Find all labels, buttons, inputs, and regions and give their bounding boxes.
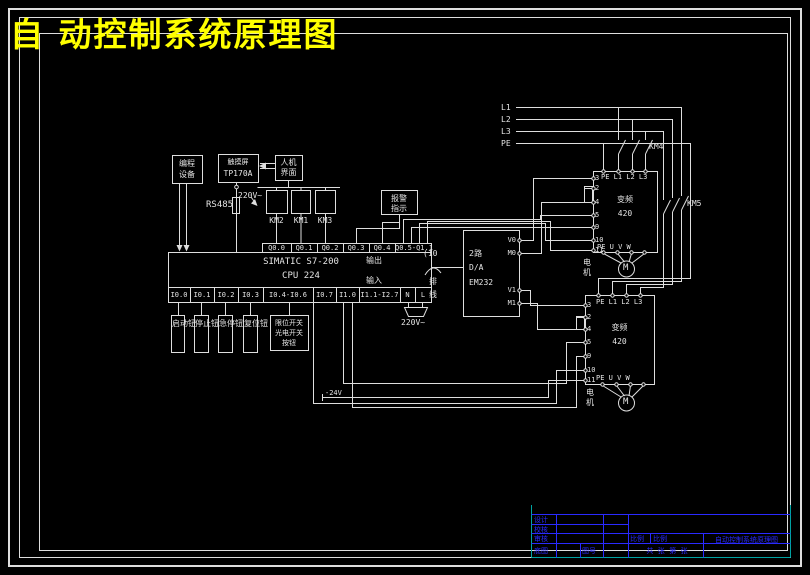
touch-panel-model: TP170A — [218, 169, 258, 178]
em232-channels: 2路 — [469, 249, 482, 258]
plc-input-2: I0.2 — [214, 291, 238, 299]
contactor-km4-label: KM4 — [649, 142, 663, 151]
titleblock-title: 自动控制系统原理图 — [704, 535, 789, 545]
conv2-motor-label-1: 电 — [586, 388, 594, 397]
programmer-label-1: 编程 — [172, 159, 202, 168]
conv2-terminal-11: 11 — [587, 376, 595, 384]
conv1-motor-label-1: 电 — [583, 258, 591, 267]
plc-supply-plug — [405, 303, 428, 317]
input-device-4: 复位钮 — [244, 319, 256, 329]
plc-out-label: 输出 — [366, 256, 382, 265]
plc-model-line1: SIMATIC S7-200 — [226, 257, 376, 267]
schematic-linework — [0, 0, 810, 575]
plc-in-label: 输入 — [366, 276, 382, 285]
rail-l2-label: L2 — [501, 115, 511, 124]
plc-output-1: Q0.1 — [291, 244, 317, 252]
rail-l1-label: L1 — [501, 103, 511, 112]
plc-input-1: I0.1 — [190, 291, 214, 299]
programmer-label-2: 设备 — [172, 170, 202, 179]
plc-output-0: Q0.0 — [262, 244, 291, 252]
rail-pe-label: PE — [501, 139, 511, 148]
plc-input-0: I0.0 — [168, 291, 190, 299]
em232-model: EM232 — [469, 278, 493, 287]
conv1-model: 420 — [593, 209, 657, 218]
plc-output-3: Q0.3 — [343, 244, 369, 252]
em232-terminal-m1: M1 — [498, 299, 516, 307]
coil-km3-label: KM3 — [315, 216, 335, 225]
drawing-title: 自 动控制系统原理图 — [10, 8, 339, 56]
contactor-km5-label: KM5 — [687, 199, 701, 208]
titleblock-sheet: 共 张 第 张 — [631, 546, 703, 556]
conv1-bottom-terminals: PE U V W — [597, 243, 631, 251]
input-device-5-line2: 光电开关 — [270, 329, 308, 337]
em232-func: D/A — [469, 263, 483, 272]
hmi-label-2: 界面 — [275, 168, 302, 177]
conv2-top-terminals: PE L1 L2 L3 — [596, 298, 642, 306]
input-device-2: 停止钮 — [195, 319, 207, 329]
titleblock-scale-right: 比例 — [653, 534, 667, 544]
hmi-label-1: 人机 — [275, 158, 302, 167]
plc-input-7: I1.1-I2.7 — [359, 291, 400, 299]
conv1-terminal-3: 3 — [595, 174, 599, 182]
input-device-1: 启动钮 — [172, 319, 184, 329]
coil-km2-label: KM2 — [266, 216, 287, 225]
alarm-label-1: 报警 — [381, 194, 417, 203]
cable-note-2: 线 — [429, 290, 437, 299]
conv2-motor-symbol: M — [623, 397, 628, 407]
conv1-motor-label-2: 机 — [583, 268, 591, 277]
titleblock-row-review: 审核 — [534, 534, 548, 544]
titleblock-row-base: 底图 — [534, 546, 548, 556]
plc-input-4: I0.4-I0.6 — [263, 291, 313, 299]
conv2-terminal-9: 9 — [587, 352, 591, 360]
conv2-name: 变频 — [585, 323, 654, 332]
plc-input-3: I0.3 — [238, 291, 263, 299]
em232-terminal-m0: M0 — [498, 249, 516, 257]
rail-l3-label: L3 — [501, 127, 511, 136]
conv2-motor-label-2: 机 — [586, 398, 594, 407]
plc-ac-supply-label: 220V~ — [401, 318, 425, 327]
panel-supply-label: 220V~ — [238, 191, 262, 200]
conv2-model: 420 — [585, 337, 654, 346]
em232-terminal-v0: V0 — [498, 236, 516, 244]
input-device-5-line1: 限位开关 — [270, 319, 308, 327]
conv1-top-terminals: PE L1 L2 L3 — [601, 173, 647, 181]
cad-drawing-canvas[interactable]: 自 动控制系统原理图 编程 设备 触摸屏 TP170A 人机 界面 RS485 … — [0, 0, 810, 575]
cable-note-1: 排 — [429, 277, 437, 286]
input-device-3: 急停钮 — [219, 319, 231, 329]
conv1-terminal-2: 2 — [595, 184, 599, 192]
plc-terminal-n: N — [400, 291, 415, 299]
titleblock-drawing-no: 图号 — [582, 546, 596, 556]
titleblock-scale-left: 比例 — [630, 534, 644, 544]
titleblock-row-design: 设计 — [534, 515, 548, 525]
conv2-terminal-10: 10 — [587, 366, 595, 374]
dc-supply-label: -24V — [325, 389, 342, 397]
conv2-terminal-2: 2 — [587, 313, 591, 321]
rs485-bus-label: RS485 — [206, 200, 233, 210]
plc-output-2: Q0.2 — [317, 244, 343, 252]
conv1-motor-symbol: M — [623, 263, 628, 273]
em232-terminal-v1: V1 — [498, 286, 516, 294]
conv1-name: 变频 — [593, 195, 657, 204]
conv1-terminal-9: 9 — [595, 223, 599, 231]
coil-km1-label: KM1 — [291, 216, 311, 225]
plc-model-line2: CPU 224 — [226, 271, 376, 281]
conv2-terminal-3: 3 — [587, 301, 591, 309]
plc-output-4: Q0.4 — [369, 244, 395, 252]
cable-count-label: (10 — [423, 249, 437, 258]
node — [235, 185, 239, 189]
plc-input-6: I1.0 — [336, 291, 359, 299]
input-device-5-line3: 按钮 — [270, 339, 308, 347]
plc-input-5: I0.7 — [313, 291, 336, 299]
conv2-bottom-terminals: PE U V W — [596, 374, 630, 382]
touch-panel-label: 触摸屏 — [218, 158, 258, 166]
alarm-label-2: 指示 — [381, 204, 417, 213]
